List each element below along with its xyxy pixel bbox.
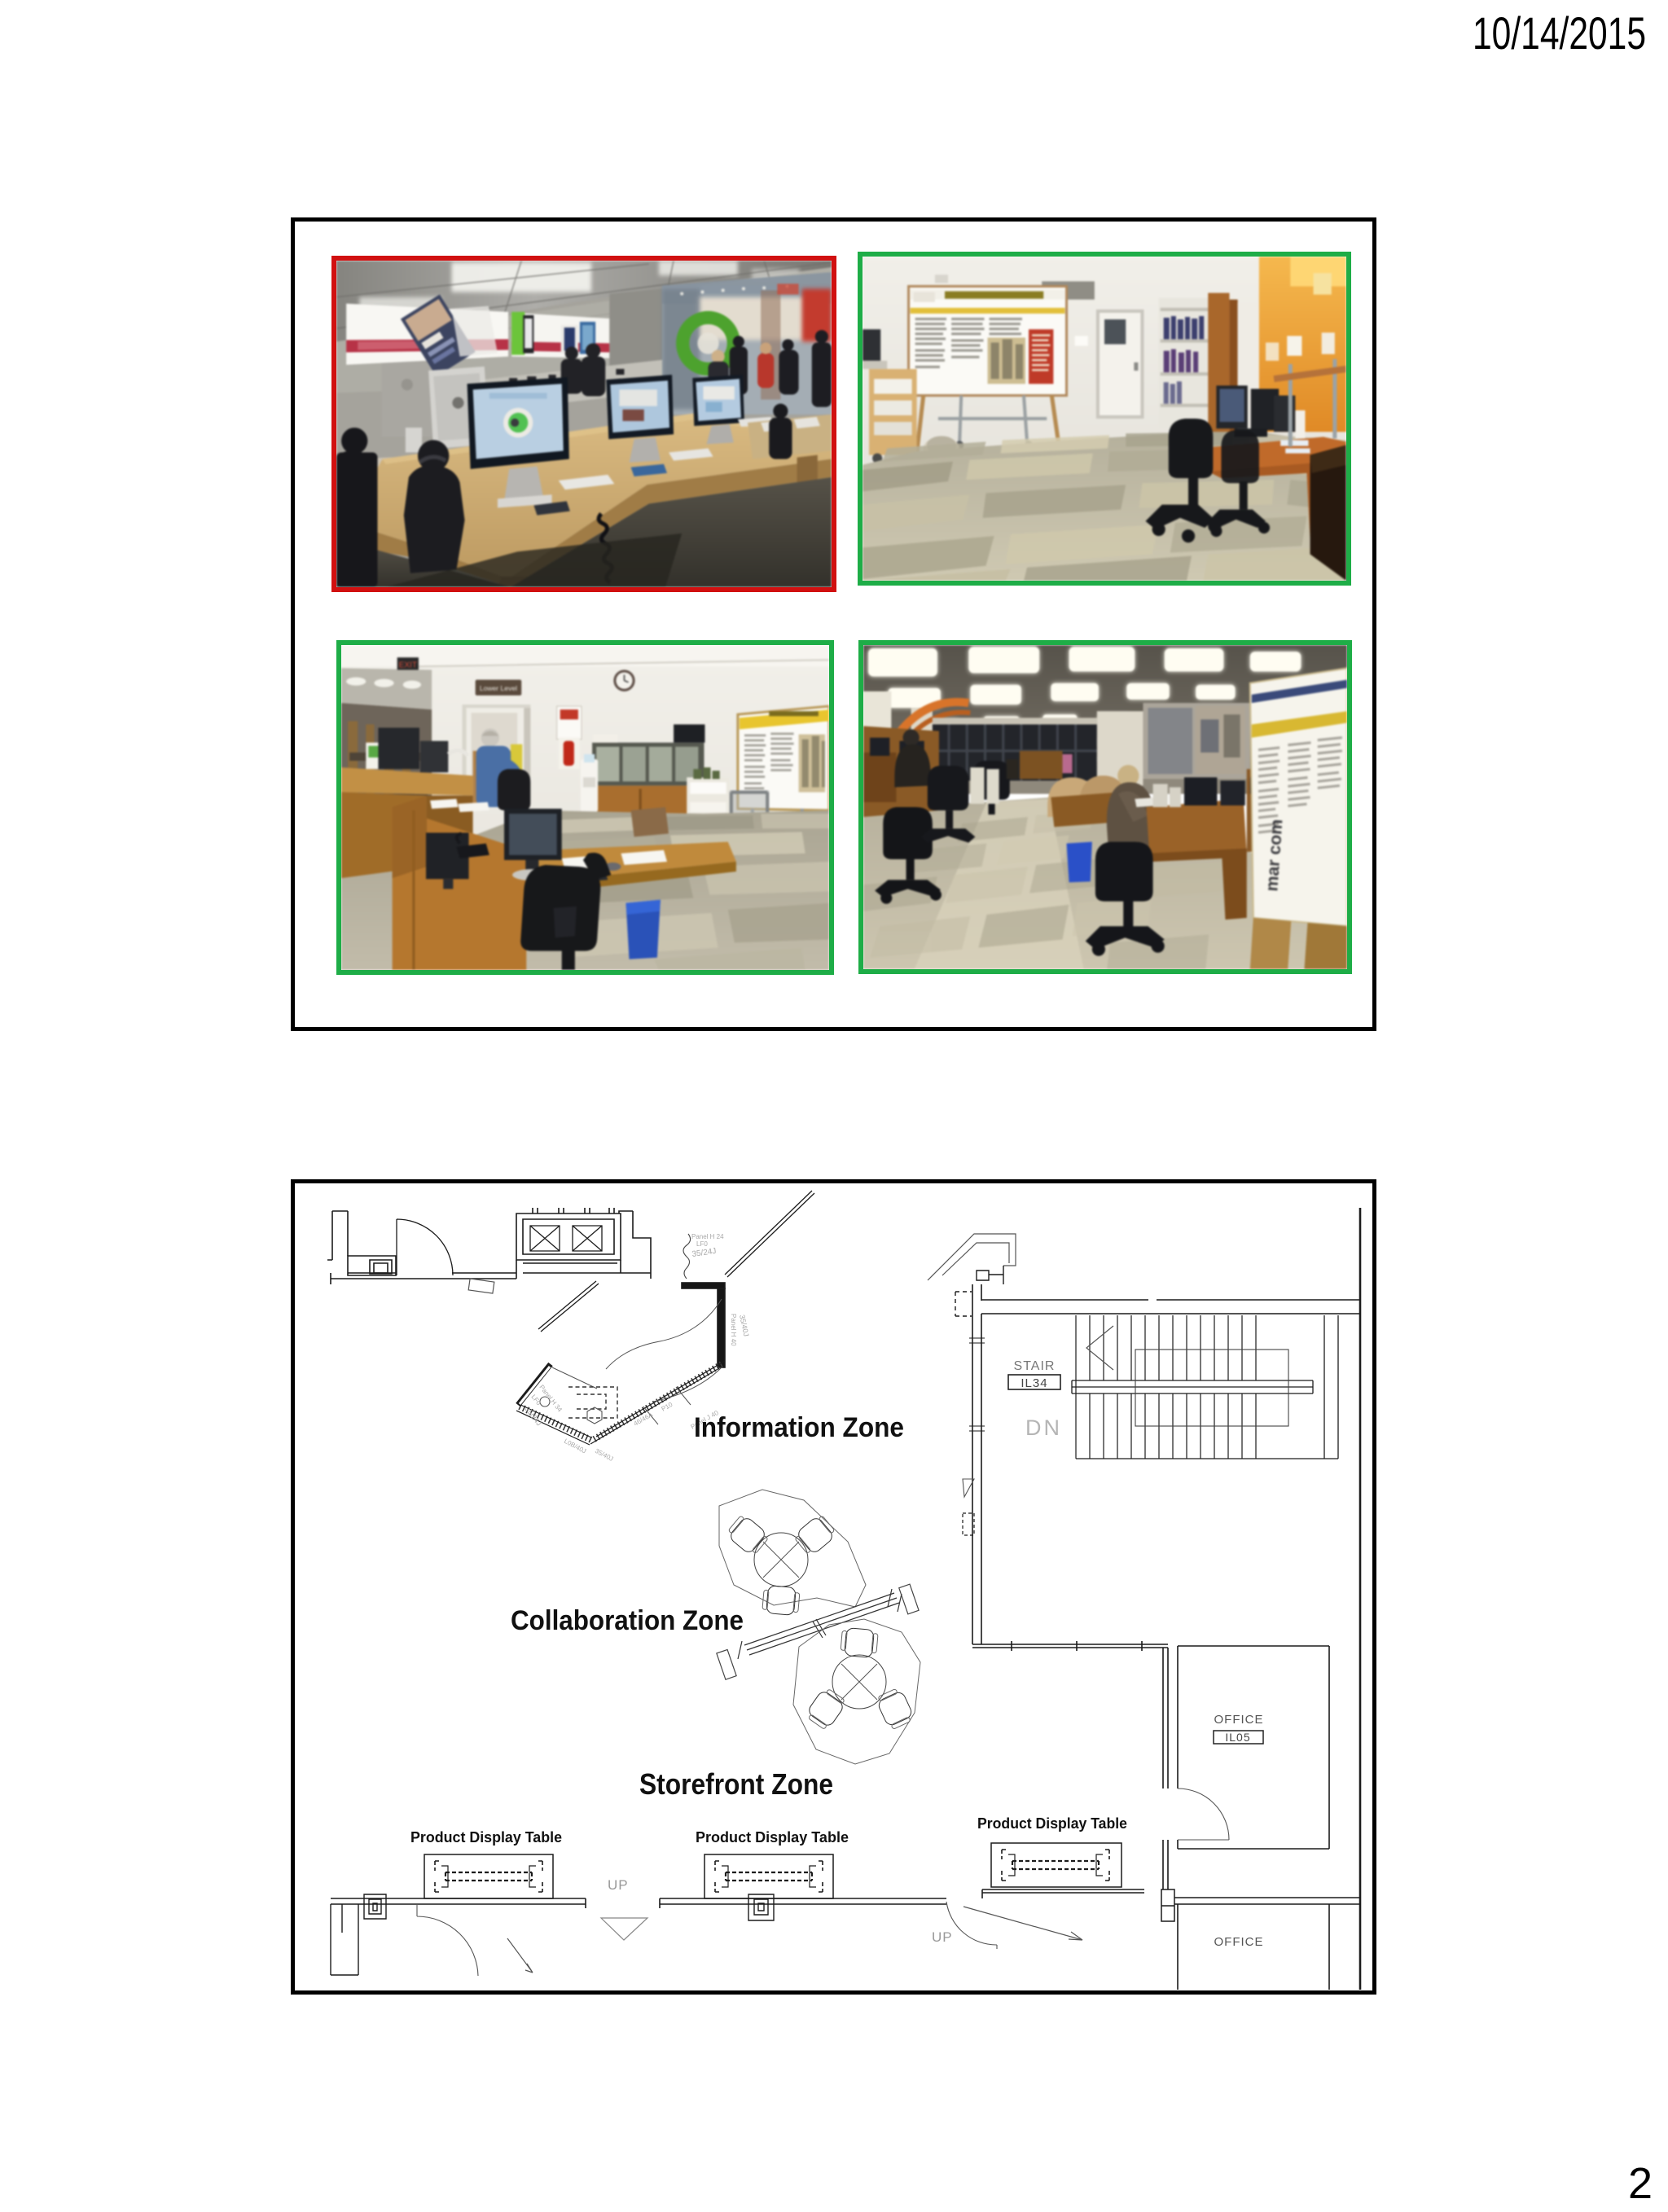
svg-text:DN: DN [1025,1415,1062,1440]
svg-text:L0B/40J: L0B/40J [563,1437,587,1455]
svg-text:Panel H 40: Panel H 40 [730,1314,737,1346]
svg-text:Collaboration Zone: Collaboration Zone [511,1605,744,1636]
svg-text:Panel H 34: Panel H 34 [538,1384,564,1414]
svg-text:OFFICE: OFFICE [1214,1935,1264,1949]
svg-text:10/14/2015: 10/14/2015 [1473,7,1646,59]
svg-text:IL34: IL34 [1021,1376,1047,1390]
svg-text:Lower Level: Lower Level [480,684,517,692]
svg-text:EXIT: EXIT [399,661,417,669]
svg-text:UP: UP [608,1877,629,1893]
svg-text:OFFICE: OFFICE [1214,1713,1264,1727]
svg-text:STAIR: STAIR [1014,1359,1056,1373]
svg-text:Information Zone: Information Zone [694,1412,904,1443]
svg-text:Storefront Zone: Storefront Zone [639,1767,833,1801]
svg-text:35/24J: 35/24J [523,1405,543,1427]
svg-text:35/40J: 35/40J [594,1447,614,1463]
svg-text:Panel H 24: Panel H 24 [691,1233,724,1240]
svg-text:IL05: IL05 [1225,1731,1250,1744]
svg-text:Product Display Table: Product Display Table [410,1829,562,1846]
svg-text:35/40J: 35/40J [738,1314,750,1337]
svg-text:LF0: LF0 [696,1240,708,1248]
svg-text:Product Display Table: Product Display Table [977,1815,1127,1832]
svg-text:35/24J: 35/24J [691,1247,717,1259]
svg-text:Product Display Table: Product Display Table [696,1829,849,1846]
svg-text:UP: UP [932,1929,953,1945]
